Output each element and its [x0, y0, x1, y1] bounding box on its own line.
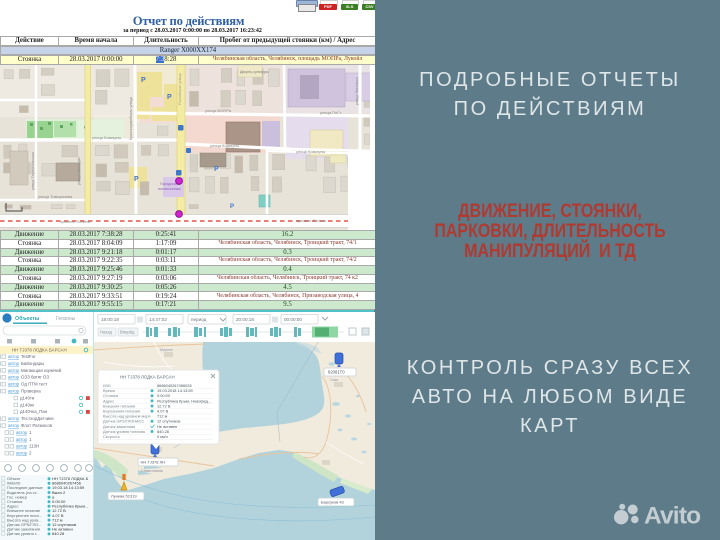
svg-text:улица Энгельса: улица Энгельса	[355, 76, 359, 105]
svg-text:д140ти: д140ти	[20, 395, 35, 400]
svg-text:Объекты: Объекты	[15, 315, 40, 322]
svg-text:автор: автор	[16, 437, 28, 442]
svg-text:P: P	[134, 176, 139, 183]
svg-text:НН TJ378 ЛОДКА БАРСАН: НН TJ378 ЛОДКА БАРСАН	[12, 348, 67, 353]
svg-text:автор: автор	[8, 389, 20, 394]
svg-text:1: 1	[29, 437, 32, 442]
svg-text:Геозоны: Геозоны	[56, 316, 76, 322]
svg-text:P: P	[167, 94, 172, 101]
svg-text:Барсуков 43: Барсуков 43	[321, 500, 345, 505]
svg-text:улица Коммуны: улица Коммуны	[92, 135, 121, 140]
svg-text:18:00:18: 18:00:18	[101, 317, 119, 322]
svg-text:автор: автор	[8, 354, 20, 359]
svg-text:Од ПТМ тест: Од ПТМ тест	[21, 382, 47, 387]
svg-text:14:47:02: 14:47:02	[149, 317, 167, 322]
svg-text:автор: автор	[8, 423, 20, 428]
svg-text:ТестхорДатчики: ТестхорДатчики	[21, 416, 54, 421]
svg-text:автор: автор	[8, 368, 20, 373]
svg-text:автор: автор	[8, 361, 20, 366]
svg-text:1: 1	[29, 430, 32, 435]
svg-text:Байондары: Байондары	[21, 361, 44, 366]
svg-text:Лунева 51319: Лунева 51319	[111, 494, 137, 499]
svg-text:улица Коммуны: улица Коммуны	[296, 149, 325, 154]
svg-text:Проверка: Проверка	[21, 389, 41, 394]
svg-text:82081T0: 82081T0	[328, 370, 345, 375]
svg-text:Севастополь: Севастополь	[141, 469, 163, 473]
svg-text:улица Свободы: улица Свободы	[77, 157, 81, 185]
svg-text:проспект Ленина: проспект Ленина	[60, 220, 91, 224]
svg-text:00:00:00: 00:00:00	[284, 317, 302, 322]
svg-text:ОЗЗ батяг ОЗ: ОЗЗ батяг ОЗ	[21, 375, 49, 380]
svg-text:840.28: 840.28	[52, 531, 65, 536]
svg-text:Городская: Городская	[160, 182, 178, 186]
svg-text:проспект Ленина: проспект Ленина	[296, 219, 327, 223]
svg-text:Флот Ратмасов: Флот Ратмасов	[21, 423, 53, 428]
svg-text:P: P	[230, 204, 234, 210]
svg-text:улица МОПРа: улица МОПРа	[205, 108, 232, 113]
svg-text:НН TJ378 ЛН: НН TJ378 ЛН	[141, 460, 166, 465]
svg-text:113Н: 113Н	[29, 444, 39, 449]
svg-text:Российская улица: Российская улица	[178, 72, 182, 105]
svg-text:автор: автор	[8, 375, 20, 380]
svg-text:период: период	[191, 317, 207, 322]
svg-text:автор: автор	[16, 430, 28, 435]
svg-text:Назад: Назад	[100, 330, 113, 335]
svg-text:2: 2	[29, 451, 32, 456]
svg-text:Саки: Саки	[330, 378, 338, 382]
svg-text:автор: автор	[16, 451, 28, 456]
svg-text:НН TJ378 ЛОДКА БАРСАН: НН TJ378 ЛОДКА БАРСАН	[120, 375, 175, 380]
svg-text:д140чка_Пан: д140чка_Пан	[20, 409, 48, 414]
svg-text:Avito: Avito	[644, 503, 701, 530]
svg-text:улица Тимирязева: улица Тимирязева	[38, 194, 73, 199]
svg-text:поликлиника: поликлиника	[158, 187, 181, 191]
svg-text:20:00:18: 20:00:18	[236, 317, 254, 322]
svg-text:улица ПоГт: улица ПоГт	[320, 110, 341, 115]
svg-text:0 км/ч: 0 км/ч	[157, 434, 168, 439]
svg-text:д140нк: д140нк	[20, 402, 34, 407]
svg-text:TestFor: TestFor	[21, 354, 36, 359]
svg-text:улица Коммуны: улица Коммуны	[210, 143, 239, 148]
svg-text:автор: автор	[16, 444, 28, 449]
svg-text:автор: автор	[8, 416, 20, 421]
svg-text:Мигающая кормчий: Мигающая кормчий	[21, 368, 62, 373]
svg-text:Мирное: Мирное	[160, 348, 173, 352]
svg-text:P: P	[214, 166, 219, 173]
svg-text:Датчик уровня т...: Датчик уровня т...	[7, 531, 40, 536]
svg-text:автор: автор	[8, 382, 20, 387]
svg-text:P: P	[141, 77, 146, 84]
svg-text:улица Тернопольская: улица Тернопольская	[31, 152, 35, 190]
svg-text:Красноармейская улица: Красноармейская улица	[129, 96, 133, 140]
svg-text:Дворец культуры: Дворец культуры	[240, 70, 269, 74]
svg-text:Скорость: Скорость	[103, 434, 120, 439]
svg-text:Вперёд: Вперёд	[120, 330, 135, 335]
